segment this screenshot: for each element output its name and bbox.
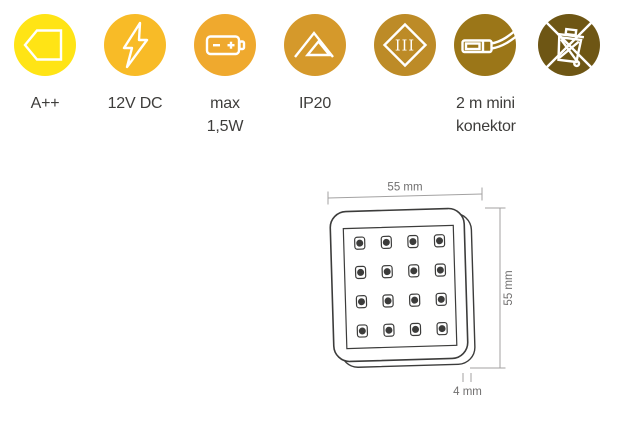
height-label: 55 mm <box>503 270 515 305</box>
height-dimension: 55 mm <box>470 208 515 368</box>
feature-label: 2 m minikonektor <box>440 92 540 138</box>
feature-max-power: max1,5W <box>180 0 270 76</box>
class-iii-diamond-icon: III <box>374 14 436 76</box>
lightning-bolt-icon <box>104 14 166 76</box>
feature-ip-rating: IP20 <box>270 0 360 76</box>
feature-protection-class: III <box>360 0 450 76</box>
feature-label: IP20 <box>270 92 360 115</box>
feature-voltage: 12V DC <box>90 0 180 76</box>
crossed-out-bin-icon <box>538 14 600 76</box>
width-dimension: 55 mm <box>328 182 482 205</box>
feature-weee-disposal <box>524 0 614 76</box>
double-triangle-icon <box>284 14 346 76</box>
dimension-drawing: 55 mm 55 mm 4 mm <box>315 170 545 415</box>
mini-connector-icon <box>454 14 516 76</box>
feature-label: max1,5W <box>180 92 270 138</box>
feature-label: A++ <box>0 92 90 115</box>
led-panel <box>330 208 476 368</box>
product-spec-sheet: A++ 12V DC <box>0 0 642 432</box>
depth-dimension: 4 mm <box>453 373 482 398</box>
width-label: 55 mm <box>387 182 422 194</box>
feature-energy-class: A++ <box>0 0 90 76</box>
energy-label-arrow-icon <box>14 14 76 76</box>
battery-icon <box>194 14 256 76</box>
feature-label: 12V DC <box>90 92 180 115</box>
class-iii-text: III <box>395 39 415 55</box>
depth-label: 4 mm <box>453 386 482 398</box>
